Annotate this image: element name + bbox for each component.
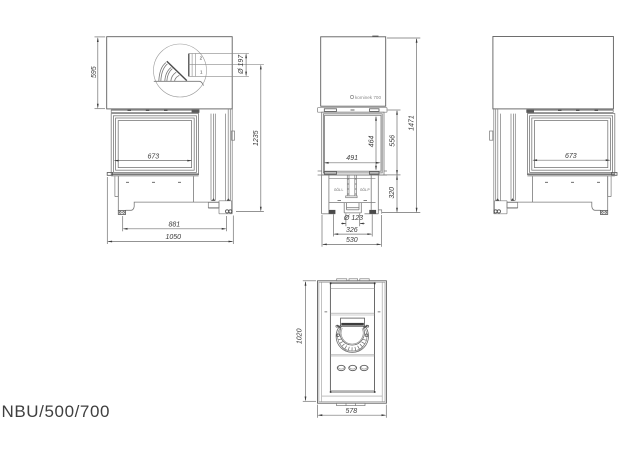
svg-text:1050: 1050 [166,234,182,241]
svg-text:kominek 700: kominek 700 [355,95,381,100]
svg-text:GÓL L: GÓL L [334,187,343,192]
svg-text:326: 326 [346,227,358,234]
svg-text:673: 673 [565,153,577,160]
svg-text:NBU/500/700: NBU/500/700 [2,402,110,421]
svg-text:595: 595 [91,66,98,78]
svg-text:1020: 1020 [296,328,303,344]
svg-text:1235: 1235 [253,130,260,146]
svg-text:Ø 197: Ø 197 [238,54,245,75]
svg-text:1471: 1471 [409,115,416,131]
svg-text:320: 320 [389,187,396,199]
svg-text:556: 556 [389,135,396,147]
svg-text:881: 881 [169,222,181,229]
svg-text:491: 491 [346,155,358,162]
svg-text:578: 578 [346,408,358,415]
svg-text:GÓL P: GÓL P [360,187,370,192]
svg-text:464: 464 [368,136,375,148]
svg-text:Ø 123: Ø 123 [343,215,363,222]
svg-text:673: 673 [148,153,160,160]
svg-text:530: 530 [346,237,358,244]
